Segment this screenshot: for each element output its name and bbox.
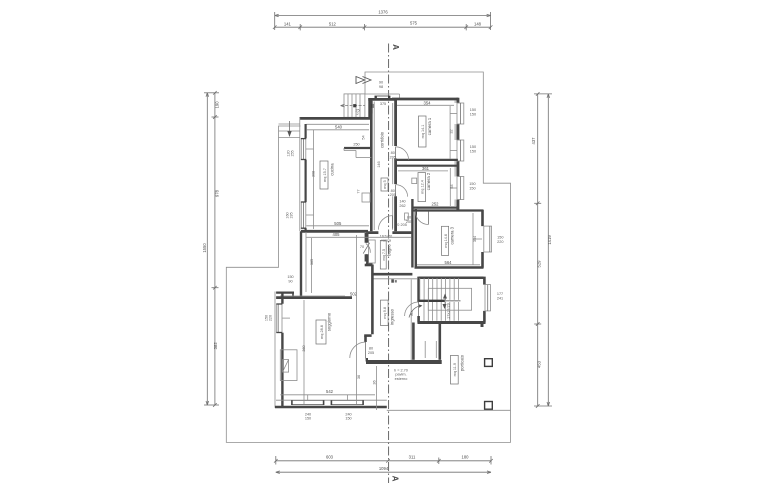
svg-text:361: 361 <box>422 166 430 171</box>
svg-text:150: 150 <box>305 417 311 421</box>
svg-text:978: 978 <box>215 189 220 197</box>
svg-text:80: 80 <box>369 347 373 351</box>
svg-text:mq 7.5: mq 7.5 <box>382 249 386 261</box>
svg-text:360: 360 <box>302 345 306 351</box>
svg-text:36: 36 <box>372 380 376 384</box>
svg-text:177: 177 <box>497 292 503 296</box>
svg-text:80: 80 <box>407 215 411 219</box>
svg-text:camera 1: camera 1 <box>427 117 432 135</box>
svg-text:542: 542 <box>326 389 334 394</box>
svg-text:205: 205 <box>390 155 396 159</box>
svg-text:354: 354 <box>424 101 432 106</box>
svg-text:529: 529 <box>537 260 542 268</box>
svg-text:250: 250 <box>353 143 359 147</box>
svg-text:70: 70 <box>360 245 364 249</box>
svg-text:1419: 1419 <box>547 235 552 245</box>
svg-text:mq 14.1: mq 14.1 <box>421 125 425 139</box>
svg-text:205: 205 <box>406 220 412 224</box>
svg-text:262: 262 <box>399 204 405 208</box>
svg-text:252: 252 <box>432 202 440 207</box>
svg-text:540: 540 <box>335 125 343 130</box>
svg-text:mq 28.8: mq 28.8 <box>320 325 324 339</box>
svg-text:mq 11.9: mq 11.9 <box>453 363 457 376</box>
svg-text:2: 2 <box>356 112 358 116</box>
svg-text:1094: 1094 <box>379 466 389 471</box>
svg-text:603: 603 <box>326 455 334 460</box>
svg-text:453: 453 <box>537 360 542 368</box>
svg-text:575: 575 <box>410 21 418 26</box>
svg-text:mq 12.4: mq 12.4 <box>421 180 425 194</box>
svg-text:140: 140 <box>399 199 405 203</box>
svg-text:180: 180 <box>462 455 470 460</box>
svg-text:36: 36 <box>357 375 361 379</box>
svg-text:150: 150 <box>287 275 293 279</box>
svg-text:corridoio: corridoio <box>380 131 385 148</box>
svg-text:mq 9.8: mq 9.8 <box>383 307 387 319</box>
svg-text:146: 146 <box>377 161 381 167</box>
svg-text:150: 150 <box>345 417 351 421</box>
svg-text:ingresso: ingresso <box>390 308 395 324</box>
svg-text:150: 150 <box>470 150 476 154</box>
svg-text:220: 220 <box>497 240 503 244</box>
svg-text:1376: 1376 <box>378 10 388 15</box>
svg-text:soggiorno: soggiorno <box>327 312 332 331</box>
svg-text:A: A <box>391 44 400 50</box>
svg-text:150: 150 <box>469 187 475 191</box>
svg-text:241: 241 <box>497 296 503 300</box>
svg-text:220: 220 <box>269 315 273 321</box>
svg-text:90: 90 <box>379 81 383 85</box>
svg-text:141: 141 <box>284 21 292 26</box>
svg-text:150: 150 <box>497 236 503 240</box>
svg-text:365: 365 <box>310 259 314 265</box>
svg-text:150: 150 <box>470 113 476 117</box>
svg-text:camera 2: camera 2 <box>426 172 431 190</box>
svg-text:150: 150 <box>469 182 475 186</box>
svg-text:150: 150 <box>470 108 476 112</box>
svg-text:32: 32 <box>450 129 454 133</box>
svg-text:311: 311 <box>409 455 416 460</box>
svg-text:mq 14.6: mq 14.6 <box>444 234 448 248</box>
svg-text:esterno: esterno <box>395 377 408 381</box>
svg-text:54: 54 <box>450 184 454 188</box>
svg-text:98: 98 <box>379 85 383 89</box>
svg-text:1550: 1550 <box>202 243 207 253</box>
svg-text:vasca: vasca <box>381 239 392 243</box>
svg-text:148: 148 <box>474 21 482 26</box>
svg-text:205: 205 <box>368 351 374 355</box>
svg-text:90: 90 <box>288 280 292 284</box>
svg-text:382: 382 <box>213 342 218 350</box>
svg-text:camera 3: camera 3 <box>450 226 455 244</box>
svg-text:190: 190 <box>215 101 220 109</box>
svg-text:155: 155 <box>291 150 295 156</box>
svg-text:porticato: porticato <box>460 354 465 371</box>
svg-text:bagno: bagno <box>387 244 392 256</box>
svg-text:205: 205 <box>390 193 396 197</box>
svg-text:54: 54 <box>362 135 366 139</box>
svg-text:505: 505 <box>334 221 342 226</box>
svg-text:A: A <box>390 476 399 482</box>
svg-text:375: 375 <box>380 102 386 106</box>
svg-text:150: 150 <box>470 145 476 149</box>
svg-text:17x17/29: 17x17/29 <box>447 303 451 319</box>
svg-text:405: 405 <box>333 232 341 237</box>
svg-text:564: 564 <box>445 260 453 265</box>
svg-text:77: 77 <box>357 189 361 193</box>
svg-text:195: 195 <box>290 212 294 218</box>
svg-text:437: 437 <box>531 137 536 145</box>
svg-text:512: 512 <box>329 21 337 26</box>
svg-text:308: 308 <box>312 171 316 177</box>
svg-text:80: 80 <box>410 311 414 315</box>
svg-text:cucina: cucina <box>330 163 335 176</box>
svg-text:mq 5: mq 5 <box>383 180 387 188</box>
svg-text:mq 15.7: mq 15.7 <box>323 168 327 182</box>
